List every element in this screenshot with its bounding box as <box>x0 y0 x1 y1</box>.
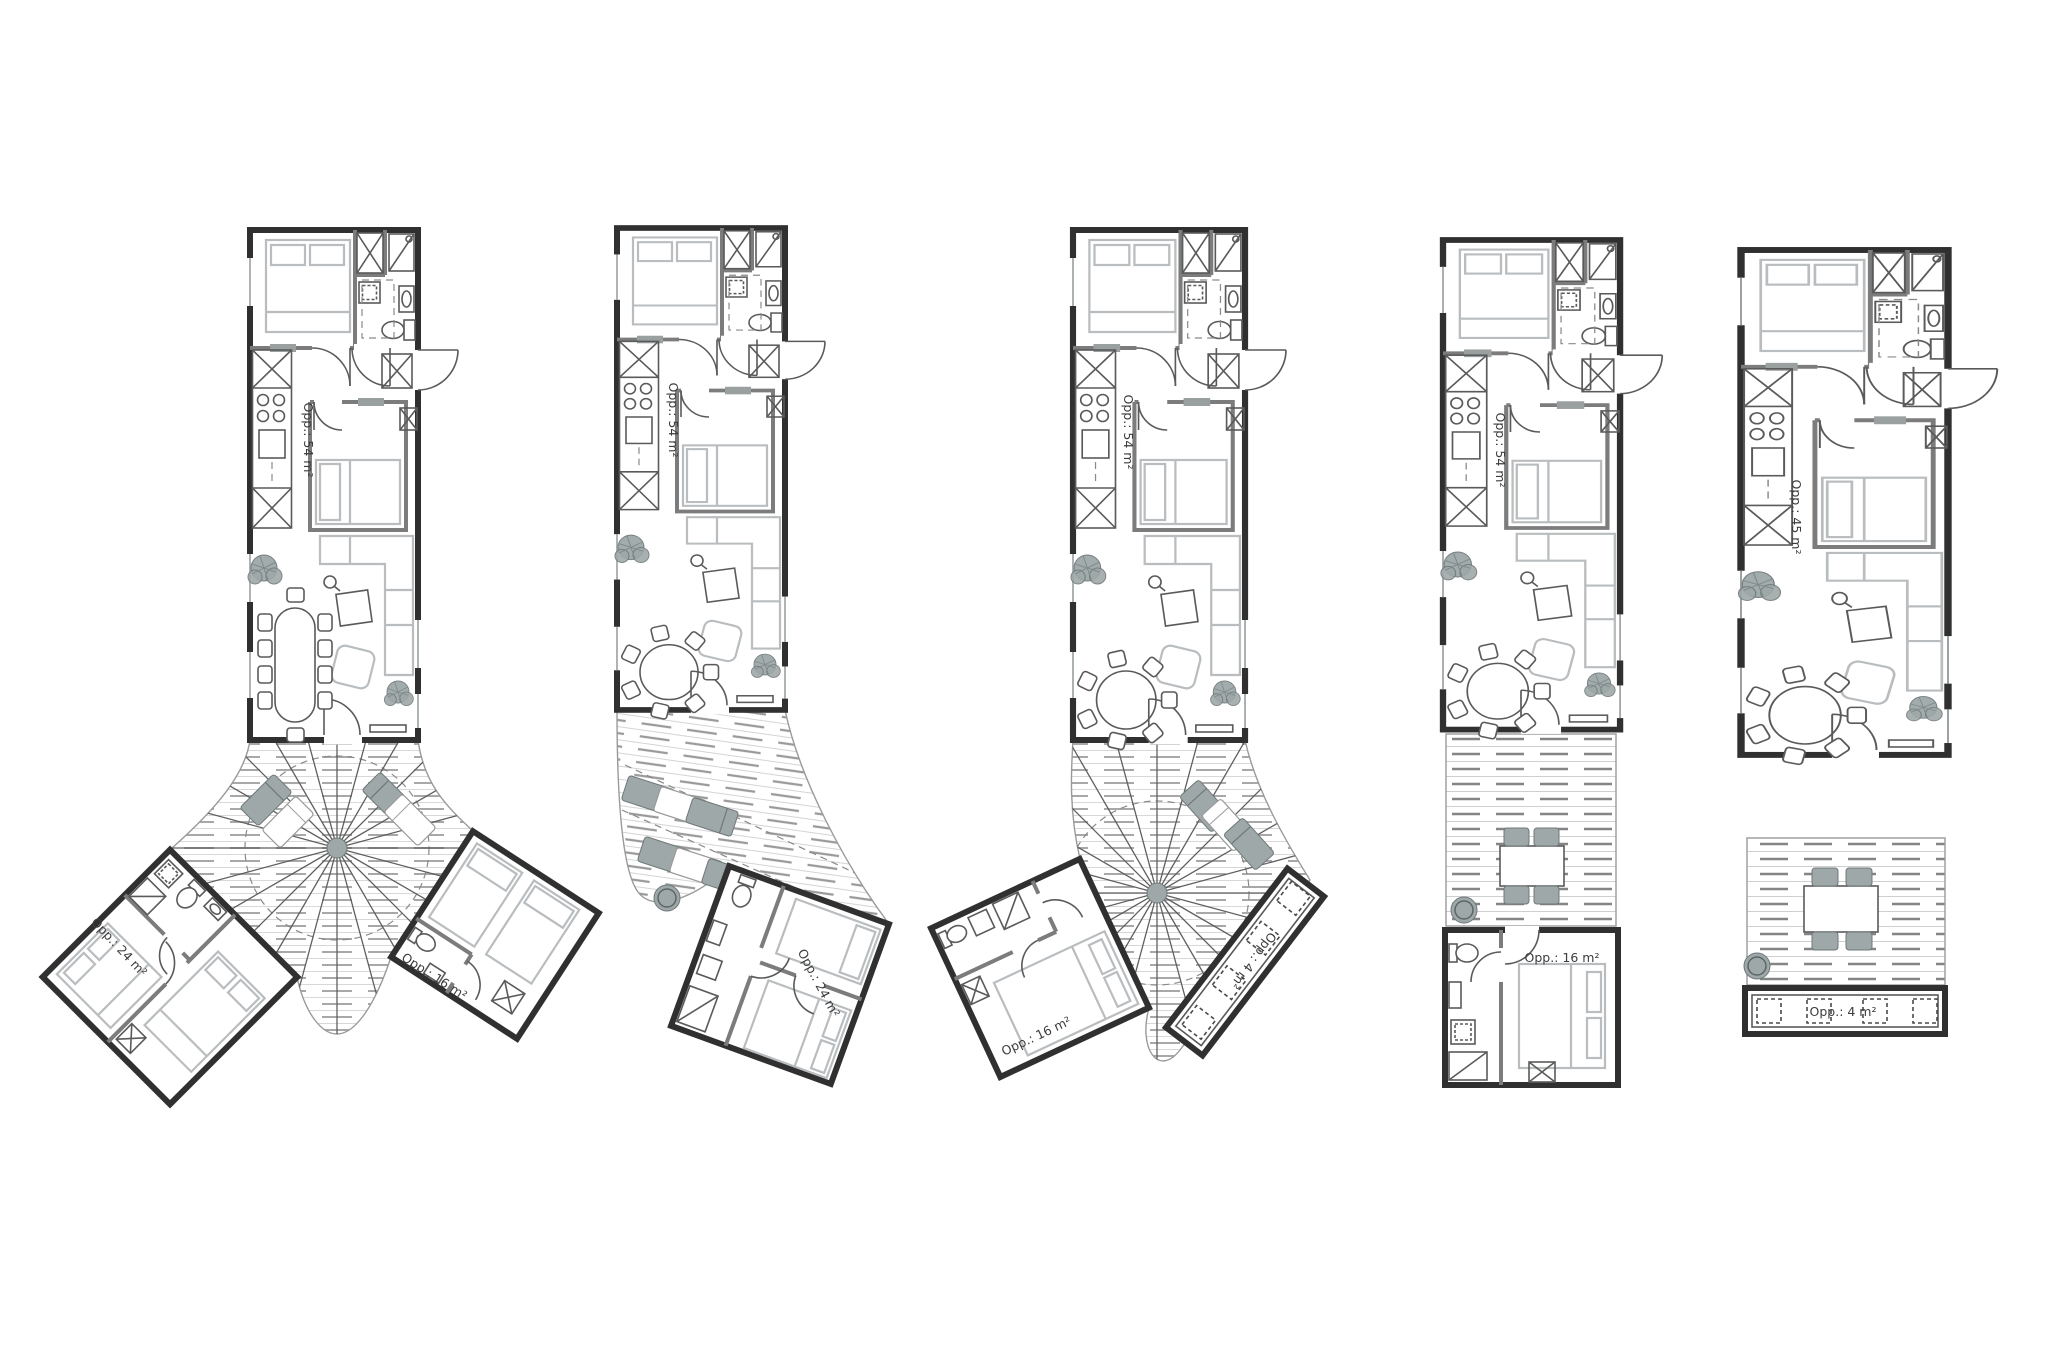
plan-5-storage-area-label: Opp.: 4 m² <box>1810 1004 1877 1019</box>
plan-2-main-unit <box>613 228 826 720</box>
plan-2 <box>613 228 890 1084</box>
toilet-icon <box>1449 944 1478 962</box>
floor-plan-sheet: Opp.: 54 m² Opp.: 24 m² Opp.: 16 m² Opp.… <box>0 0 2048 1365</box>
deck-hub-icon <box>327 838 347 858</box>
plan-5-deck <box>1744 838 1945 985</box>
deck-chair-icon <box>1812 932 1838 950</box>
deck-table-icon <box>1804 886 1878 932</box>
plan-4-annex-area-label: Opp.: 16 m² <box>1525 950 1600 965</box>
double-bed-icon <box>1519 964 1605 1068</box>
deck-chair-icon <box>1534 886 1559 904</box>
plan-5-main-unit <box>1735 250 1997 765</box>
plan-4-main-area-label: Opp.: 54 m² <box>1493 413 1508 488</box>
plan-3 <box>907 230 1407 1143</box>
deck-hub-icon <box>1147 883 1167 903</box>
deck-chair-icon <box>1812 868 1838 886</box>
plan-3-main-area-label: Opp.: 54 m² <box>1121 395 1136 470</box>
plan-5 <box>1735 250 1997 1034</box>
plan-3-main-unit <box>1068 230 1286 750</box>
sink-icon <box>1449 982 1461 1008</box>
deck-chair-icon <box>1504 828 1529 846</box>
plan-5-main-area-label: Opp.: 45 m² <box>1789 480 1804 555</box>
plan-1-main-area-label: Opp.: 54 m² <box>301 403 316 478</box>
plan-4-main-unit <box>1438 240 1662 739</box>
deck-chair-icon <box>1846 868 1872 886</box>
plan-1-main-unit <box>246 230 459 745</box>
deck-chair-icon <box>1846 932 1872 950</box>
plan-4-deck <box>1446 734 1616 926</box>
plan-1 <box>43 230 599 1104</box>
deck-chair-icon <box>1504 886 1529 904</box>
plan-2-main-area-label: Opp.: 54 m² <box>666 383 681 458</box>
floor-plans-drawing: Opp.: 54 m² Opp.: 24 m² Opp.: 16 m² Opp.… <box>0 0 2048 1365</box>
deck-table-icon <box>1500 846 1564 886</box>
deck-chair-icon <box>1534 828 1559 846</box>
washer-icon <box>1451 1020 1475 1044</box>
